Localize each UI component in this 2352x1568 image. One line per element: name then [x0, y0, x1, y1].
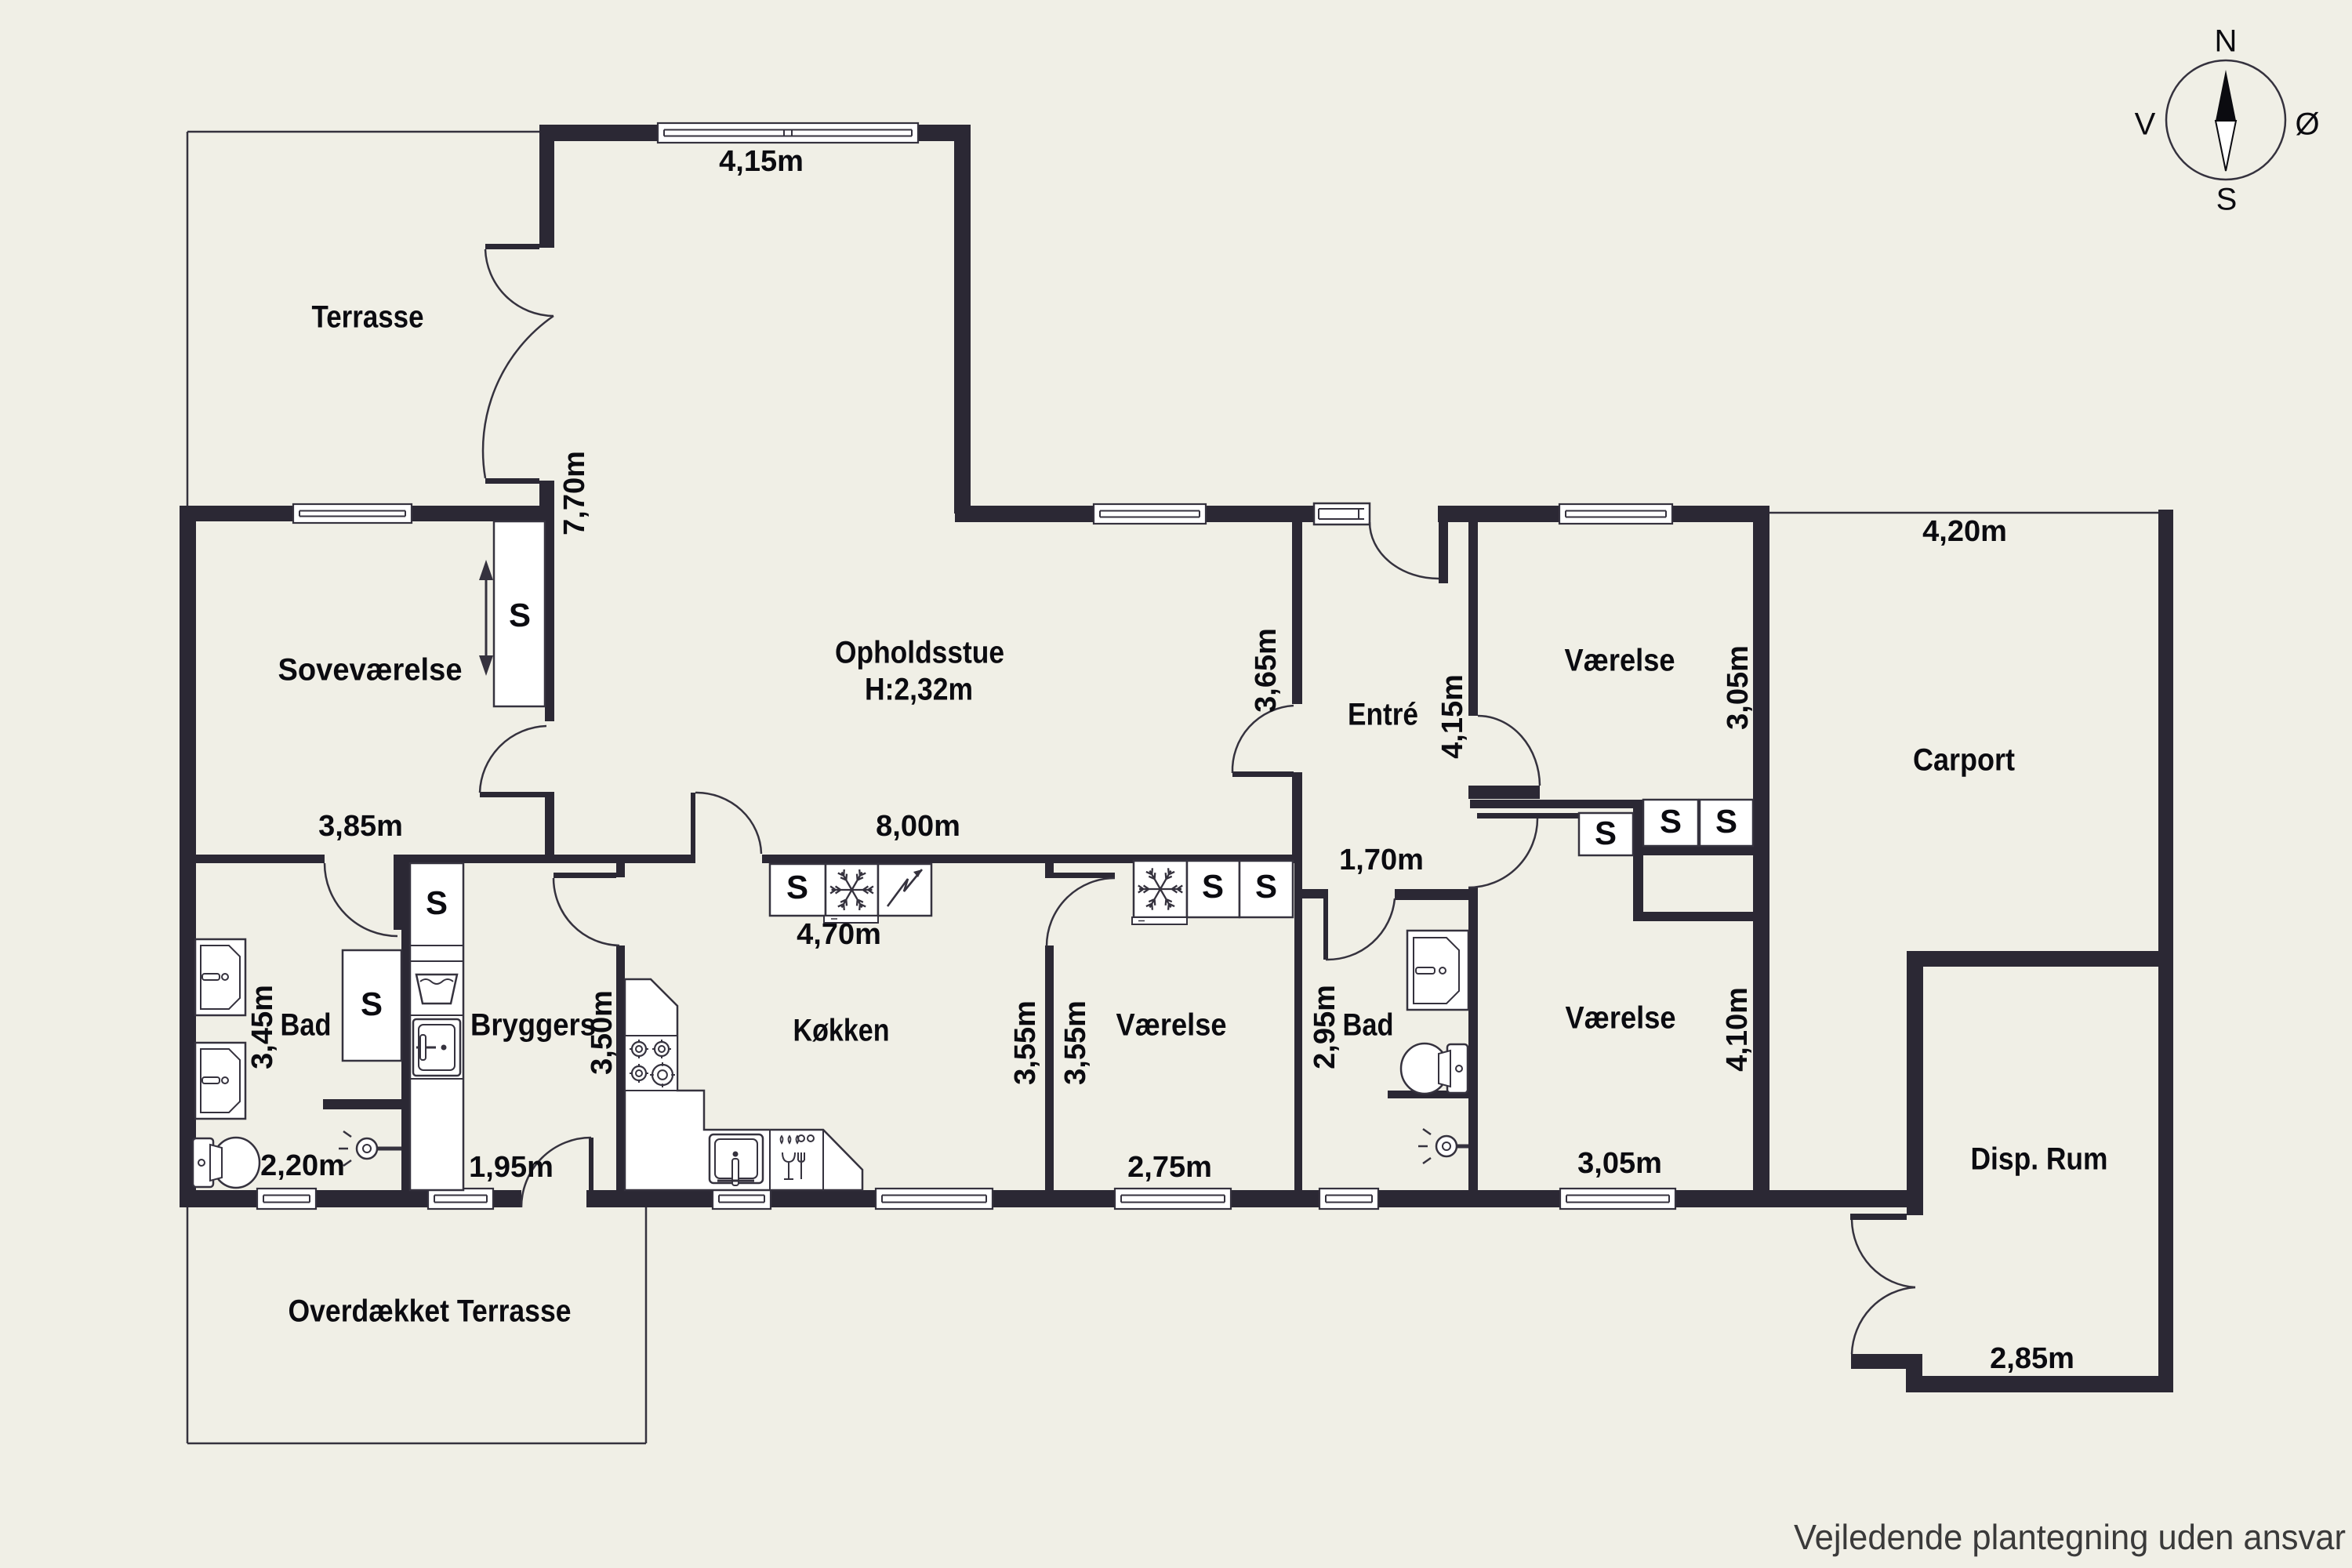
- svg-text:4,70m: 4,70m: [797, 918, 881, 951]
- svg-text:Bad: Bad: [281, 1008, 332, 1043]
- svg-text:S: S: [509, 597, 531, 633]
- svg-text:Ø: Ø: [2295, 107, 2319, 142]
- svg-text:Entré: Entré: [1348, 698, 1418, 732]
- svg-text:7,70m: 7,70m: [558, 451, 591, 535]
- svg-text:Soveværelse: Soveværelse: [278, 653, 463, 688]
- svg-text:3,85m: 3,85m: [318, 810, 403, 843]
- svg-text:Værelse: Værelse: [1116, 1008, 1227, 1043]
- svg-text:2,95m: 2,95m: [1308, 985, 1341, 1069]
- svg-text:1,95m: 1,95m: [469, 1151, 554, 1184]
- svg-text:Køkken: Køkken: [793, 1014, 890, 1048]
- svg-text:S: S: [426, 884, 448, 921]
- svg-text:V: V: [2135, 107, 2156, 142]
- svg-text:3,05m: 3,05m: [1577, 1147, 1662, 1180]
- svg-text:S: S: [1255, 868, 1277, 905]
- svg-text:Bad: Bad: [1343, 1008, 1394, 1043]
- svg-text:Overdækket Terrasse: Overdækket Terrasse: [289, 1294, 572, 1329]
- svg-text:S: S: [2216, 183, 2238, 217]
- svg-text:8,00m: 8,00m: [876, 810, 960, 843]
- svg-text:2,85m: 2,85m: [1990, 1342, 2074, 1375]
- svg-text:3,45m: 3,45m: [246, 985, 279, 1069]
- svg-text:3,65m: 3,65m: [1250, 628, 1283, 713]
- svg-text:3,50m: 3,50m: [586, 990, 619, 1075]
- svg-text:Vejledende plantegning uden an: Vejledende plantegning uden ansvar: [1794, 1517, 2346, 1557]
- svg-text:3,55m: 3,55m: [1059, 1000, 1092, 1085]
- svg-text:Værelse: Værelse: [1566, 1001, 1676, 1036]
- svg-text:Terrasse: Terrasse: [312, 300, 424, 335]
- svg-text:S: S: [1660, 803, 1682, 840]
- svg-text:S: S: [786, 869, 808, 906]
- svg-text:Bryggers: Bryggers: [470, 1008, 596, 1043]
- svg-text:Disp. Rum: Disp. Rum: [1971, 1142, 2108, 1177]
- svg-text:Værelse: Værelse: [1565, 644, 1675, 678]
- svg-text:N: N: [2215, 24, 2238, 59]
- svg-text:2,20m: 2,20m: [260, 1149, 345, 1182]
- svg-text:S: S: [1202, 868, 1224, 905]
- svg-text:3,55m: 3,55m: [1009, 1000, 1042, 1085]
- svg-text:S: S: [361, 985, 383, 1022]
- svg-text:H:2,32m: H:2,32m: [865, 673, 973, 707]
- svg-text:3,05m: 3,05m: [1722, 645, 1755, 730]
- svg-text:1,70m: 1,70m: [1339, 844, 1424, 877]
- svg-text:4,15m: 4,15m: [719, 145, 804, 178]
- svg-text:4,20m: 4,20m: [1922, 515, 2007, 548]
- svg-text:Opholdsstue: Opholdsstue: [835, 636, 1004, 670]
- svg-text:4,15m: 4,15m: [1436, 674, 1469, 759]
- svg-text:S: S: [1595, 815, 1617, 851]
- svg-text:4,10m: 4,10m: [1721, 987, 1754, 1072]
- svg-text:Carport: Carport: [1913, 743, 2015, 778]
- svg-text:S: S: [1715, 803, 1737, 840]
- svg-text:2,75m: 2,75m: [1127, 1151, 1212, 1184]
